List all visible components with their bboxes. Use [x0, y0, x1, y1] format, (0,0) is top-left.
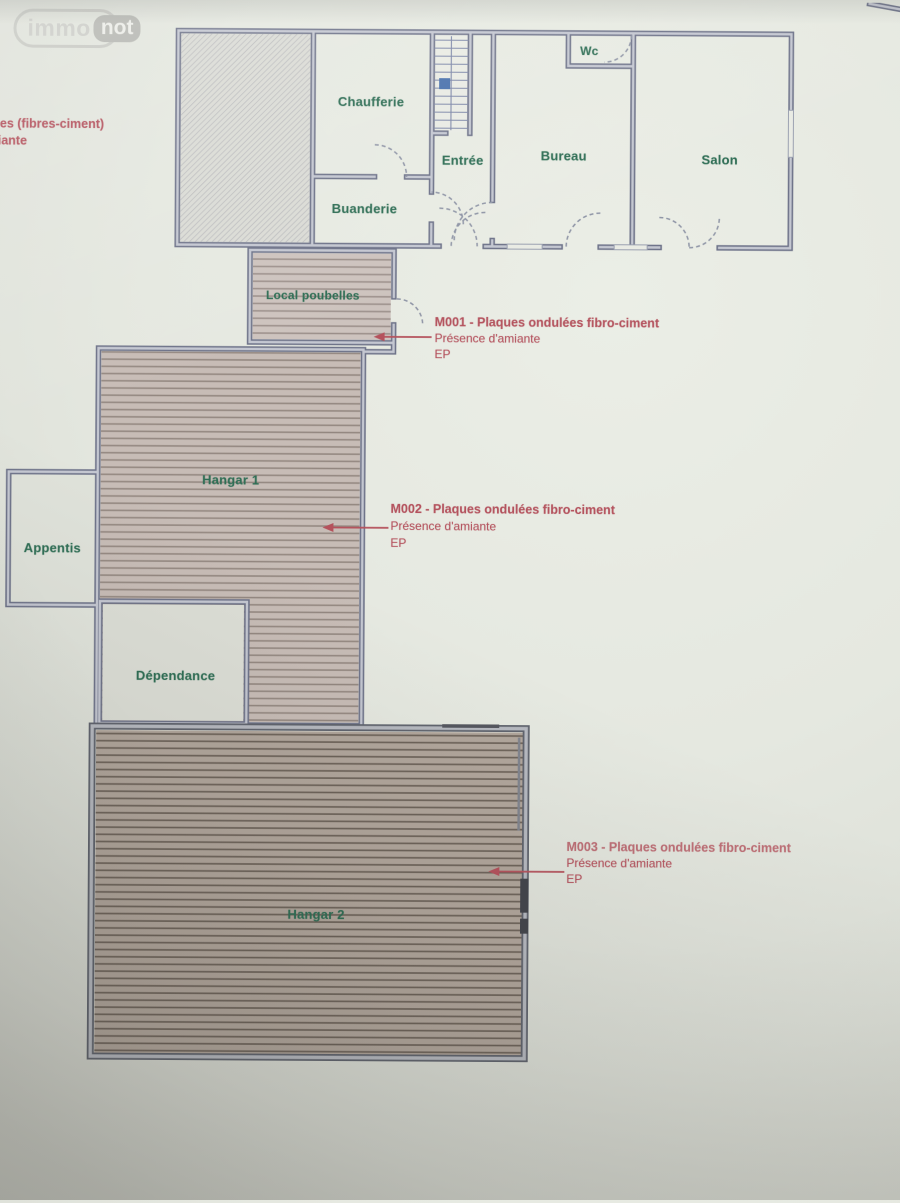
salon-door-arc-right: [689, 218, 719, 248]
room-label-salon: Salon: [701, 152, 737, 167]
entree-ext-door-arc-right: [451, 212, 485, 246]
annotation-m002-line3: EP: [390, 535, 614, 553]
annotation-m003: M003 - Plaques ondulées fibro-ciment Pré…: [566, 839, 791, 888]
room-label-appentis: Appentis: [24, 540, 81, 555]
room-label-chaufferie: Chaufferie: [338, 94, 404, 109]
hangar-2-door-bar-1: [520, 879, 528, 913]
left-edge-cutoff-line1: es (fibres-ciment): [0, 115, 104, 133]
room-label-dependance: Dépendance: [136, 668, 215, 683]
hangar-2-door-bar-2: [520, 919, 528, 934]
wc-door-arc: [604, 35, 631, 62]
room-label-buanderie: Buanderie: [332, 201, 397, 216]
room-label-local-poubelles: Local poubelles: [266, 288, 360, 303]
hangar-2-inner-wall: [519, 738, 520, 831]
logo-not-badge: not: [94, 15, 141, 42]
entree-ext-door-arc-left: [439, 208, 477, 246]
window-bottom-1: [507, 244, 542, 249]
stair-direction-marker: [439, 78, 450, 89]
room-label-wc: Wc: [580, 44, 598, 58]
left-edge-cutoff-line2: iante: [0, 132, 104, 150]
chaufferie-door-arc: [375, 145, 407, 177]
logo-immo-text: immo: [27, 15, 91, 42]
floorplan-drawing: [0, 0, 900, 1203]
annotation-m003-title: M003 - Plaques ondulées fibro-ciment: [566, 839, 790, 856]
door-arcs: [374, 34, 721, 327]
entree-bureau-door-arc: [454, 202, 492, 240]
local-poubelles-door-arc: [397, 299, 423, 325]
room-label-hangar-1: Hangar 1: [202, 472, 259, 487]
garage-diagonal-hatch: [180, 34, 310, 243]
hangar-2-top-lintel: [442, 724, 499, 728]
annotation-m003-line2: Présence d'amiante: [566, 855, 790, 872]
buanderie-door-arc: [431, 192, 463, 224]
photographed-floorplan: Chaufferie Buanderie Entrée Wc Bureau Sa…: [0, 0, 900, 1203]
hangar-2-hatch: [94, 730, 523, 1056]
window-bottom-2: [614, 245, 647, 250]
appentis-floor: [11, 475, 95, 603]
immonot-watermark-logo: immo not: [13, 9, 119, 49]
bureau-ext-door-arc: [566, 213, 600, 247]
annotation-m003-line3: EP: [566, 871, 790, 888]
annotation-m002-title: M002 - Plaques ondulées fibro-ciment: [391, 501, 615, 519]
window-salon-right: [788, 110, 793, 157]
room-label-bureau: Bureau: [541, 148, 587, 163]
left-edge-cutoff-note: es (fibres-ciment) iante: [0, 115, 104, 150]
room-label-hangar-2: Hangar 2: [287, 907, 344, 922]
annotation-m002-line2: Présence d'amiante: [390, 518, 614, 536]
dependance-floor: [102, 604, 244, 721]
annotation-m001-line2: Présence d'amiante: [435, 330, 659, 347]
annotation-m002: M002 - Plaques ondulées fibro-ciment Pré…: [390, 501, 615, 553]
floorplan-photo-page: { "watermark": { "immo": "immo", "not": …: [0, 0, 900, 1200]
salon-door-arc-left: [659, 217, 689, 247]
annotation-m001-title: M001 - Plaques ondulées fibro-ciment: [435, 314, 659, 331]
room-label-entree: Entrée: [442, 153, 484, 168]
annotation-m001-line3: EP: [434, 346, 658, 363]
annotation-m001: M001 - Plaques ondulées fibro-ciment Pré…: [434, 314, 659, 363]
